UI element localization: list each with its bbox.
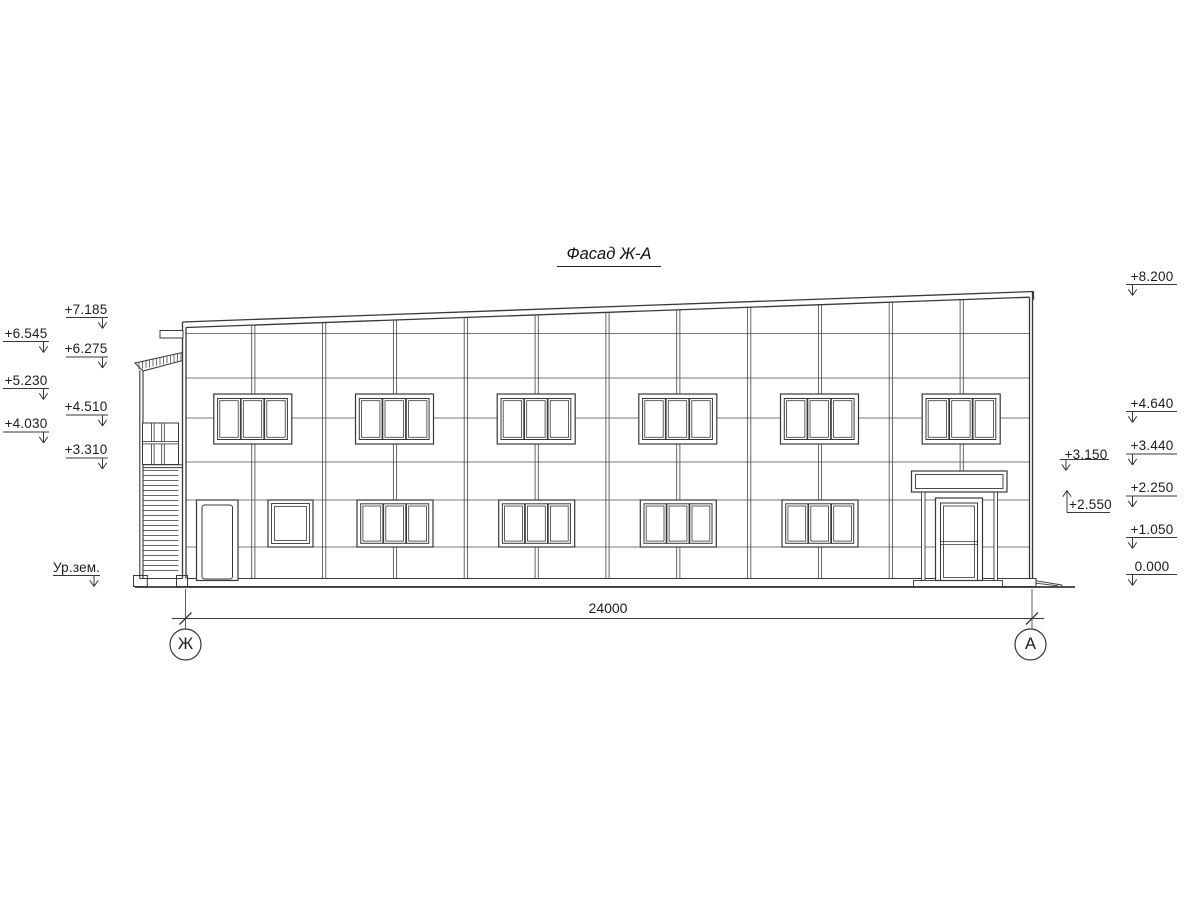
canopy-post-left: [922, 492, 926, 581]
elevation-mark: +3.310: [62, 442, 110, 457]
parapet: [183, 292, 1034, 328]
axis-bubble-left-label: Ж: [170, 636, 201, 653]
elevation-mark: +3.440: [1126, 438, 1178, 453]
tower-roof: [135, 353, 183, 372]
tower-walls: [140, 371, 143, 579]
stair-tower: [134, 353, 188, 587]
window: [214, 394, 292, 444]
axis-bubble-right-label: А: [1015, 636, 1046, 653]
tower-stairs: [143, 471, 179, 571]
facade-line-art: [0, 0, 1200, 900]
window: [497, 394, 575, 444]
plinth: [179, 579, 1036, 587]
elevation-mark: +5.230: [3, 373, 49, 388]
left-wall: [183, 322, 187, 579]
ground-level-label: Ур.зем.: [53, 560, 99, 575]
elevation-mark-leaders: [3, 285, 1177, 587]
dimension-label: 24000: [586, 601, 630, 616]
entrance-canopy: [912, 471, 1008, 492]
drawing-title: Фасад Ж-А: [557, 245, 661, 267]
window: [781, 394, 859, 444]
elevation-mark: +2.250: [1126, 480, 1178, 495]
elevation-mark: 0.000: [1126, 559, 1178, 574]
window: [356, 394, 434, 444]
window: [782, 500, 858, 547]
facade-drawing-canvas: Фасад Ж-А +6.545 +5.230 +4.030 +7.185 +6…: [0, 0, 1200, 900]
entrance: [912, 471, 1008, 587]
entrance-door: [936, 498, 983, 581]
upper-windows: [214, 394, 1000, 444]
tower-window: [143, 423, 179, 465]
window: [640, 500, 716, 547]
elevation-mark: +6.545: [3, 326, 49, 341]
window: [499, 500, 575, 547]
tower-floor-line: [143, 465, 183, 468]
square-window: [268, 500, 313, 547]
window: [357, 500, 433, 547]
elevation-mark: +3.150: [1063, 447, 1109, 462]
window: [922, 394, 1000, 444]
entrance-threshold: [914, 581, 1003, 587]
elevation-mark: +4.510: [62, 399, 110, 414]
elevation-mark: +8.200: [1126, 269, 1178, 284]
right-wall: [1030, 292, 1033, 579]
window: [639, 394, 717, 444]
lower-windows: [357, 500, 858, 547]
elevation-mark: +7.185: [62, 302, 110, 317]
entrance-ramp: [1036, 581, 1062, 587]
canopy-post-right: [994, 492, 998, 581]
elevation-mark: +4.640: [1126, 396, 1178, 411]
fascia-ledge: [160, 331, 183, 339]
elevation-mark: +4.030: [3, 416, 49, 431]
left-door: [197, 500, 239, 581]
elevation-mark: +1.050: [1126, 522, 1178, 537]
elevation-mark: +6.275: [62, 341, 110, 356]
elevation-mark: +2.550: [1069, 497, 1111, 512]
